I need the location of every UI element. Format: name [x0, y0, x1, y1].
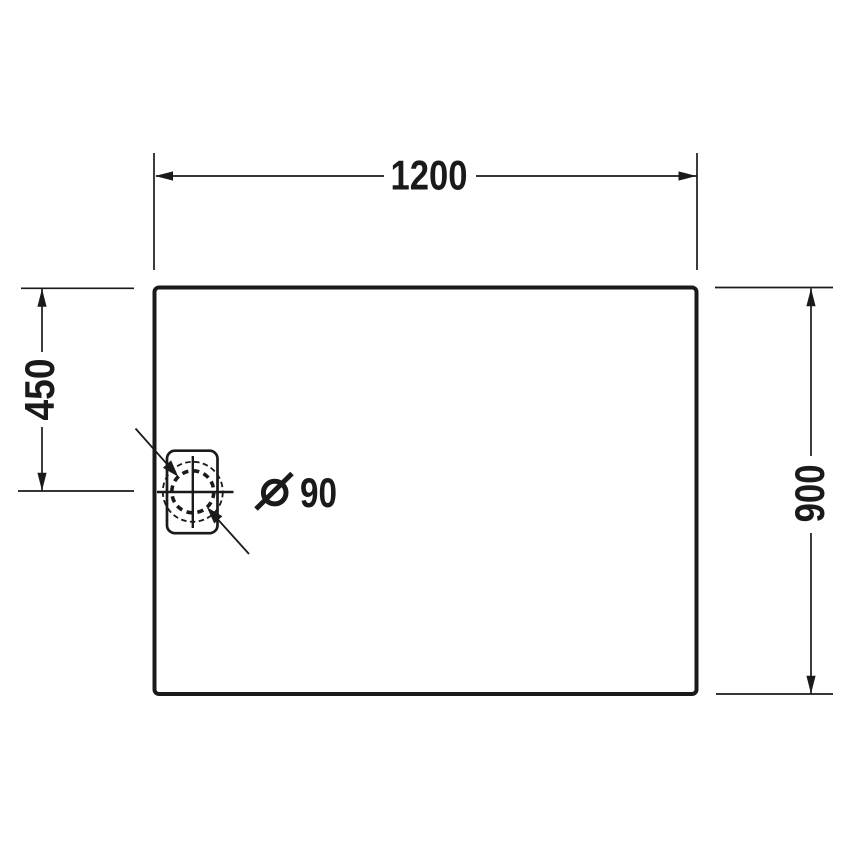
svg-text:1200: 1200 — [391, 152, 468, 199]
svg-text:90: 90 — [300, 469, 337, 516]
svg-text:900: 900 — [786, 464, 833, 522]
svg-text:450: 450 — [16, 359, 63, 421]
